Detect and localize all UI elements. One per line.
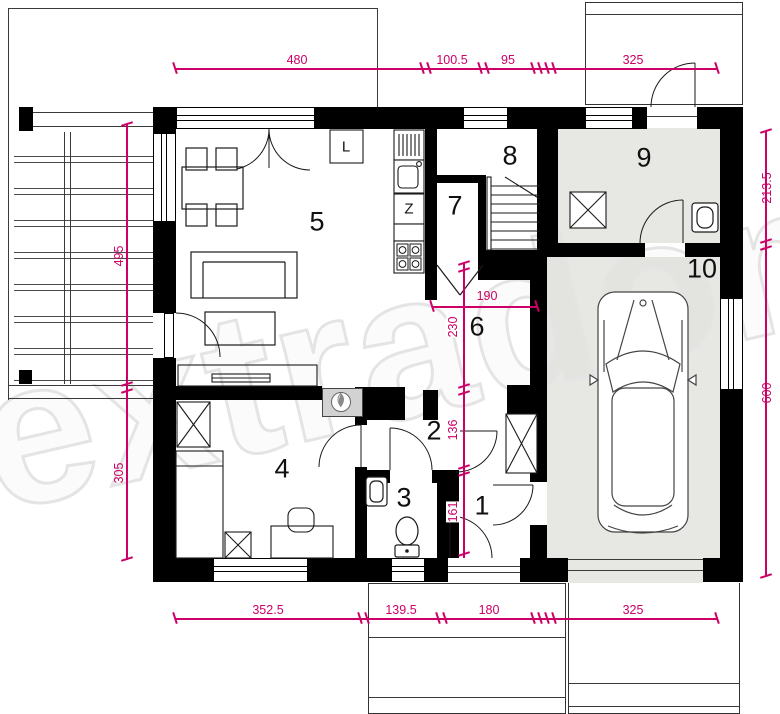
room-label-4: 4	[274, 454, 289, 485]
coffee-table	[205, 312, 275, 345]
dim-value: 352.5	[252, 603, 283, 617]
washbasin-icon	[692, 203, 718, 232]
dim-value: 190	[477, 289, 498, 303]
wardrobe	[177, 402, 210, 447]
toilet-icon	[395, 517, 419, 557]
dim-line-left	[126, 124, 128, 560]
dim-value: 139.5	[385, 603, 416, 617]
dim-value: 325	[623, 53, 644, 67]
fridge-label: L	[342, 139, 350, 156]
sofa	[191, 252, 297, 298]
door-room9	[640, 200, 683, 243]
fireplace-icon	[332, 393, 351, 412]
dim-line-top	[175, 68, 718, 70]
door-room4	[319, 425, 361, 467]
car	[590, 292, 696, 533]
washbasin-icon	[366, 477, 387, 506]
desk	[271, 508, 333, 558]
wardrobe	[570, 192, 606, 228]
room-label-8: 8	[502, 141, 517, 172]
dim-value: 600	[760, 383, 774, 404]
room-label-1: 1	[474, 491, 489, 522]
dining-table	[182, 148, 243, 226]
dim-value: 480	[287, 53, 308, 67]
room-label-5: 5	[309, 207, 324, 238]
floor-plan: extradom	[0, 0, 780, 714]
dim-value: 161	[446, 502, 460, 523]
dim-value: 100.5	[436, 53, 467, 67]
room-label-6: 6	[469, 312, 484, 343]
dim-value: 230	[446, 317, 460, 338]
dim-value: 180	[479, 603, 500, 617]
door-terrace	[176, 313, 220, 357]
bed	[176, 451, 223, 558]
dishwasher-label: Z	[404, 201, 413, 218]
staircase	[487, 177, 540, 250]
dim-value: 325	[623, 603, 644, 617]
room-label-2: 2	[426, 416, 441, 447]
room-label-3: 3	[396, 483, 411, 514]
dim-value: 305	[112, 463, 126, 484]
wardrobe	[506, 414, 537, 473]
dim-value: 213.5	[760, 172, 774, 203]
room-label-10: 10	[687, 254, 717, 285]
dim-line-inner-v	[463, 263, 465, 558]
room-label-9: 9	[636, 143, 651, 174]
dim-line-190	[432, 306, 538, 308]
nightstand	[225, 532, 251, 558]
dim-value: 95	[501, 53, 515, 67]
room-label-7: 7	[447, 191, 462, 222]
door-room1-garage	[493, 485, 533, 525]
door-french-right	[269, 129, 310, 170]
dim-value: 495	[112, 246, 126, 267]
door-front-entry	[651, 63, 695, 107]
dim-value: 136	[446, 420, 460, 441]
tv-sideboard	[178, 365, 317, 386]
